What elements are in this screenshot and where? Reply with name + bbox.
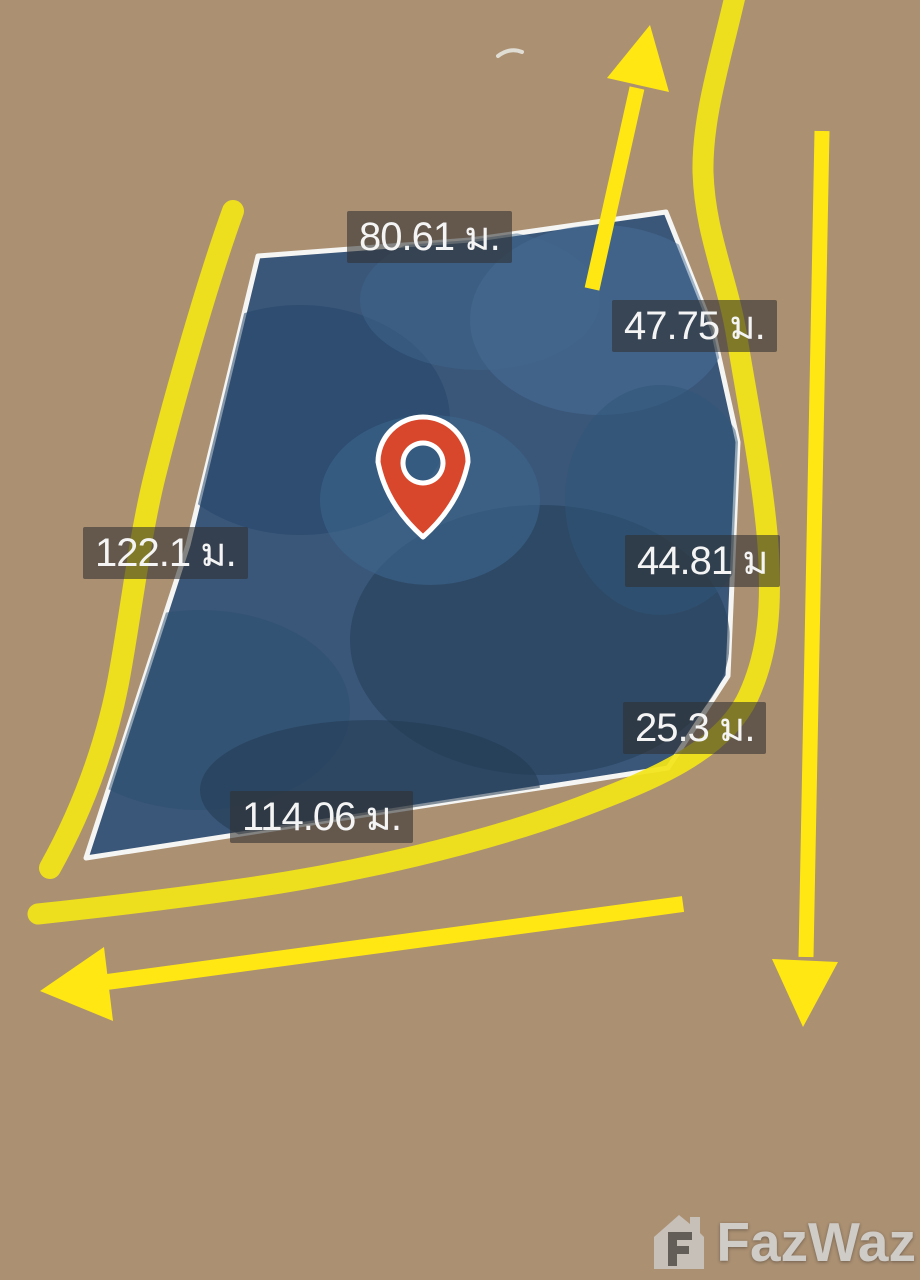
measurement-label-upper-right: 47.75 ม. (612, 300, 777, 352)
map-artifact (498, 50, 522, 56)
direction-arrow-down (772, 131, 838, 1027)
measurement-label-left: 122.1 ม. (83, 527, 248, 579)
fazwaz-house-icon (648, 1210, 710, 1274)
direction-arrow-left (40, 904, 683, 1021)
measurement-label-bottom: 114.06 ม. (230, 791, 413, 843)
map-annotations (0, 0, 920, 1280)
measurement-label-top: 80.61 ม. (347, 211, 512, 263)
fazwaz-brand-text: FazWaz (716, 1210, 916, 1274)
satellite-map: 80.61 ม. 47.75 ม. 122.1 ม. 44.81 ม 25.3 … (0, 0, 920, 1280)
measurement-label-lower-right: 25.3 ม. (623, 702, 766, 754)
measurement-label-right: 44.81 ม (625, 535, 780, 587)
fazwaz-watermark: FazWaz (648, 1210, 916, 1274)
